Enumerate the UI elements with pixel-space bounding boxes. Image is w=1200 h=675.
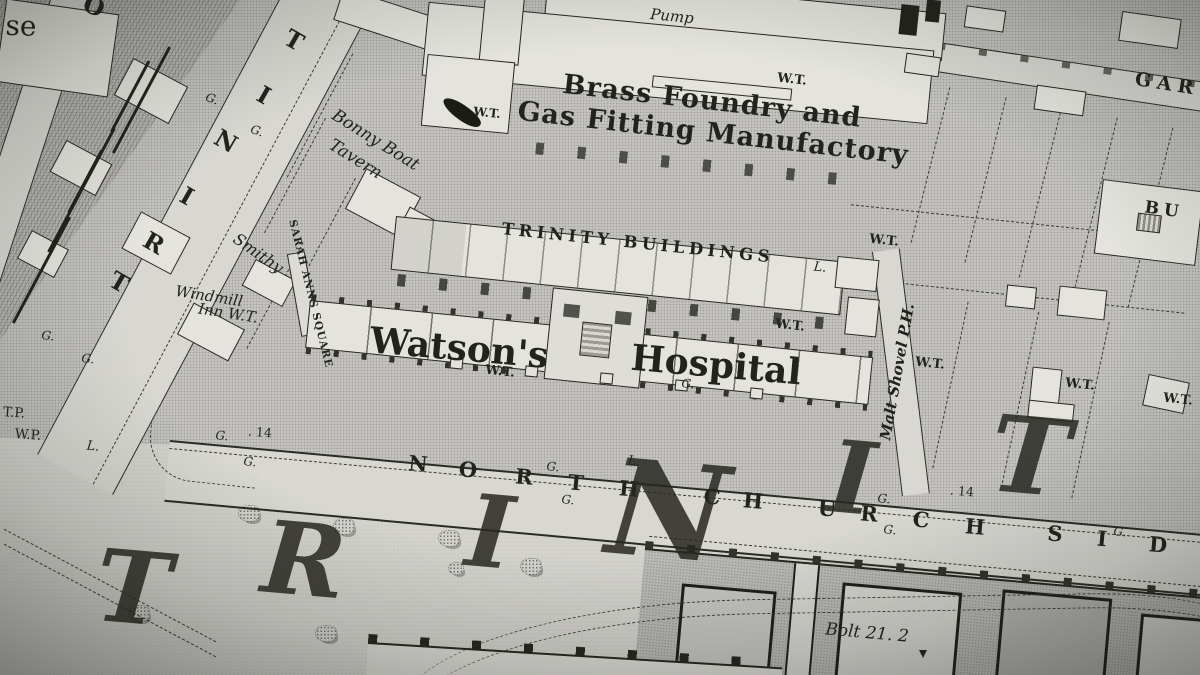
hospital-centre-cell-2: [615, 311, 632, 326]
building-east-small-1: [1005, 284, 1037, 309]
north-church-side-letter: S: [1046, 522, 1063, 545]
building-foundry-west-wing: [479, 0, 526, 66]
district-letter: I: [824, 417, 881, 539]
hospital-centre-stairs: [579, 322, 612, 359]
gas-lamp-marker: G.: [81, 352, 96, 366]
water-tap-marker: W.T.: [869, 233, 900, 250]
district-letter: T: [985, 390, 1074, 521]
gas-lamp-marker: G.: [1113, 525, 1127, 539]
water-plug-marker: W.P.: [14, 427, 41, 443]
spot-level-marker: . 14: [950, 483, 975, 498]
gas-lamp-marker: G.: [41, 329, 56, 343]
gas-lamp-marker: G.: [243, 455, 257, 469]
water-tap-marker: W.T.: [485, 364, 516, 381]
north-church-side-letter: H: [964, 515, 986, 539]
spot-level-marker: . 14: [248, 424, 273, 439]
tree-1: [238, 505, 260, 522]
district-letter: N: [601, 430, 735, 595]
district-letter: R: [257, 498, 350, 623]
hospital-centre-cell-1: [563, 304, 580, 319]
north-church-side-letter: T: [567, 471, 585, 494]
water-tap-marker: W.T.: [473, 105, 502, 120]
building-east-small-2: [1057, 286, 1108, 321]
lamp-marker: L.: [813, 261, 827, 276]
gas-lamp-marker: G.: [561, 493, 575, 507]
district-letter: T: [91, 526, 175, 650]
building-east-of-hospital-1: [834, 256, 879, 292]
lamp-marker: L.: [86, 440, 100, 455]
gas-lamp-marker: G.: [215, 429, 229, 443]
water-tap-marker: W.T.: [777, 72, 808, 89]
tree-5: [315, 625, 337, 642]
tree-7: [448, 562, 464, 575]
building-dark-1: [898, 4, 919, 36]
gas-lamp-marker: G.: [877, 492, 891, 506]
district-letter: I: [462, 471, 519, 593]
building-east-of-hospital-2: [844, 296, 880, 337]
trinity-buildings-west-section: [392, 217, 467, 276]
north-church-side-letter: C: [912, 508, 931, 531]
telegraph-post-marker: T.P.: [3, 405, 26, 421]
gas-lamp-marker: G.: [883, 523, 897, 537]
building-dark-2: [925, 0, 941, 23]
label-house-partial: se: [5, 11, 37, 41]
gas-lamp-marker: G.: [546, 460, 560, 474]
hospital-porch-3: [599, 372, 613, 384]
north-church-side-letter: I: [1096, 528, 1108, 551]
tree-6: [520, 558, 542, 575]
benchmark-arrow-icon: [919, 650, 927, 658]
north-church-side-letter: N: [407, 452, 428, 476]
map-photo: se O T I N I R T G. G. G. G. G. G. G. G.…: [0, 0, 1200, 675]
north-church-side-letter: H: [742, 489, 764, 513]
tree-3: [438, 530, 460, 547]
water-tap-marker: W.T.: [775, 318, 806, 335]
water-tap-marker: W.T.: [1065, 377, 1096, 394]
north-church-side-letter: D: [1148, 533, 1168, 557]
water-tap-marker: W.T.: [1163, 392, 1194, 409]
building-bu-partial: [1094, 179, 1200, 266]
water-tap-marker: W.T.: [915, 356, 946, 373]
